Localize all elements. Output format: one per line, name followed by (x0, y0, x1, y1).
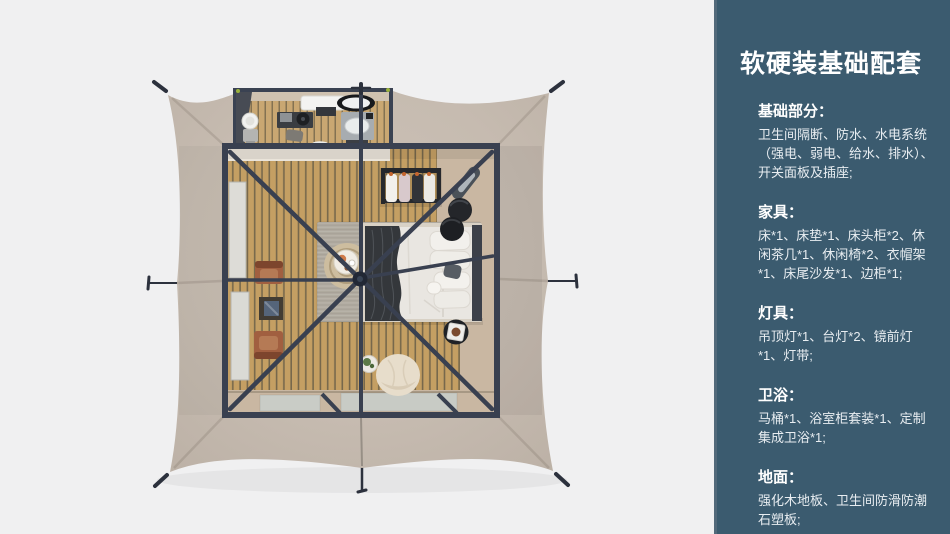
spec-sections: 基础部分： 卫生间隔断、防水、水电系统（强电、弱电、给水、排水）、开关面板及插座… (758, 100, 936, 529)
section-body: 吊顶灯*1、台灯*2、镜前灯*1、灯带; (758, 327, 936, 365)
spec-section-lighting: 灯具： 吊顶灯*1、台灯*2、镜前灯*1、灯带; (758, 302, 936, 365)
spec-section-furniture: 家具： 床*1、床垫*1、床头柜*2、休闲茶几*1、休闲椅*2、衣帽架*1、床尾… (758, 201, 936, 283)
counter (316, 107, 336, 116)
wardrobe-rack (380, 168, 442, 207)
spec-section-basics: 基础部分： 卫生间隔断、防水、水电系统（强电、弱电、给水、排水）、开关面板及插座… (758, 100, 936, 182)
slide: 软硬装基础配套 基础部分： 卫生间隔断、防水、水电系统（强电、弱电、给水、排水）… (0, 0, 950, 534)
section-heading: 地面： (758, 466, 936, 487)
tent-floorplan-render (0, 0, 714, 534)
bean-bag (376, 354, 420, 396)
coffee-table (259, 297, 283, 320)
section-heading: 家具： (758, 201, 936, 222)
section-body: 床*1、床垫*1、床头柜*2、休闲茶几*1、休闲椅*2、衣帽架*1、床尾沙发*1… (758, 226, 936, 283)
toilet (242, 113, 258, 146)
panel-title: 软硬装基础配套 (740, 44, 940, 80)
window-left-lower (231, 292, 249, 380)
spec-section-bathroom: 卫浴： 马桶*1、浴室柜套装*1、定制集成卫浴*1; (758, 384, 936, 447)
lounge-chair-lower (254, 331, 283, 359)
section-body: 卫生间隔断、防水、水电系统（强电、弱电、给水、排水）、开关面板及插座; (758, 125, 936, 182)
spec-section-flooring: 地面： 强化木地板、卫生间防滑防潮石塑板; (758, 466, 936, 529)
corner-marker (386, 88, 390, 92)
section-heading: 基础部分： (758, 100, 936, 121)
section-body: 强化木地板、卫生间防滑防潮石塑板; (758, 491, 936, 529)
section-heading: 灯具： (758, 302, 936, 323)
window-left-upper (229, 182, 246, 278)
bathroom-pod (233, 88, 393, 149)
plant-side-table (361, 356, 378, 373)
tray-stool (444, 320, 469, 345)
corner-marker (236, 89, 240, 93)
section-heading: 卫浴： (758, 384, 936, 405)
headboard (472, 225, 482, 321)
shower-sink-unit (337, 95, 375, 146)
section-body: 马桶*1、浴室柜套装*1、定制集成卫浴*1; (758, 409, 936, 447)
entry-mat-left (260, 395, 320, 411)
spec-panel: 软硬装基础配套 基础部分： 卫生间隔断、防水、水电系统（强电、弱电、给水、排水）… (714, 0, 950, 534)
